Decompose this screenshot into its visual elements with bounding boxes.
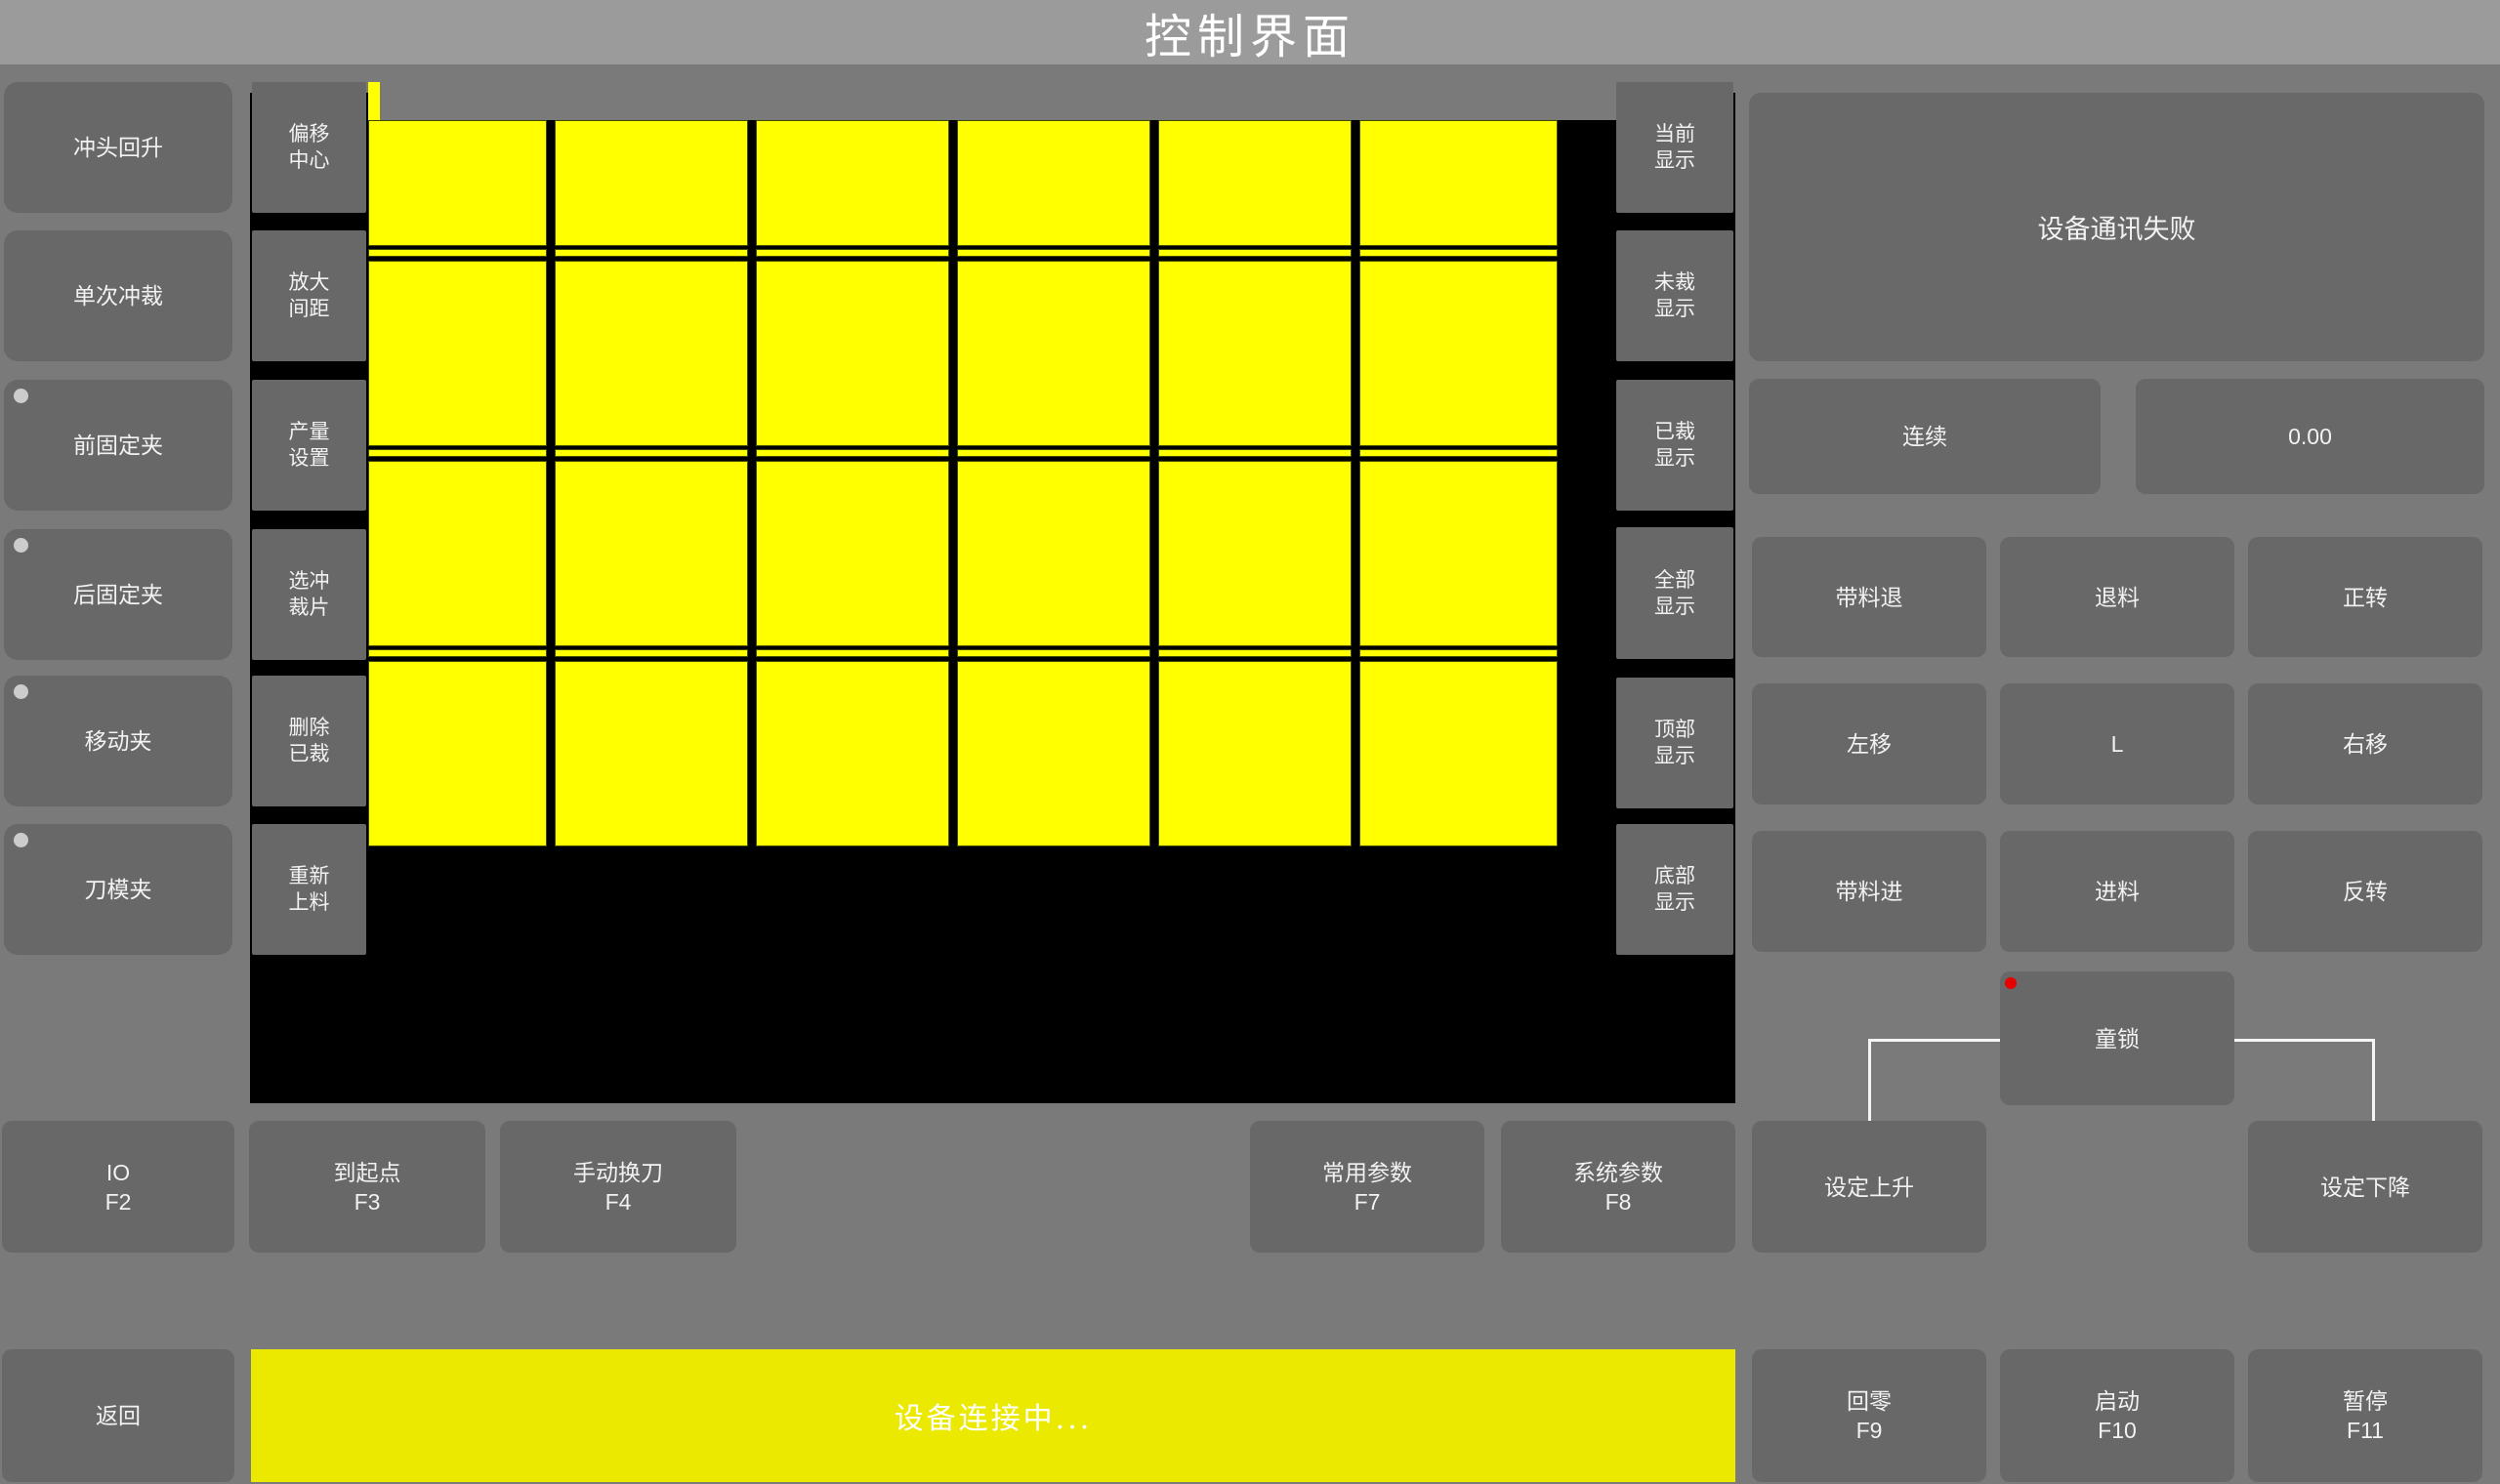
button-offset-center[interactable]: 偏移 中心 — [252, 82, 366, 213]
grid-piece[interactable] — [1158, 661, 1352, 846]
jog-move-left-button[interactable]: 左移 — [1752, 683, 1986, 804]
button-label: 启动 — [2095, 1386, 2140, 1416]
button-label: 重新 上料 — [289, 863, 330, 916]
indicator-dot — [14, 833, 28, 847]
grid-cut-strip — [1359, 449, 1558, 457]
button-label: 到起点 — [334, 1158, 401, 1187]
title-bar: 控制界面 — [0, 0, 2500, 64]
fkey-caption: F4 — [605, 1187, 632, 1216]
button-show-cut[interactable]: 已裁 显示 — [1616, 380, 1733, 511]
value-display-field[interactable]: 0.00 — [2136, 379, 2484, 494]
grid-piece[interactable] — [1359, 661, 1558, 846]
grid-cut-strip — [555, 649, 748, 657]
button-label: 连续 — [1902, 422, 1947, 451]
button-label: L — [2111, 729, 2124, 759]
grid-cut-strip — [1158, 649, 1352, 657]
button-label: 暂停 — [2343, 1386, 2388, 1416]
button-rear-clamp[interactable]: 后固定夹 — [4, 529, 232, 660]
button-label: 选冲 裁片 — [289, 568, 330, 621]
grid-cut-strip — [756, 649, 949, 657]
grid-piece[interactable] — [1158, 461, 1352, 646]
button-show-bottom[interactable]: 底部 显示 — [1616, 824, 1733, 955]
grid-piece[interactable] — [1158, 120, 1352, 246]
grid-piece[interactable] — [756, 120, 949, 246]
canvas-top-margin — [368, 93, 1616, 120]
jog-feed-button[interactable]: 进料 — [2000, 831, 2234, 952]
grid-piece[interactable] — [1359, 461, 1558, 646]
grid-cut-strip — [756, 449, 949, 457]
button-label: 全部 显示 — [1654, 567, 1695, 620]
indicator-dot — [14, 684, 28, 699]
button-label: 未裁 显示 — [1654, 269, 1695, 322]
grid-cut-strip — [368, 649, 547, 657]
button-label: IO — [106, 1158, 130, 1187]
grid-cut-strip — [1359, 649, 1558, 657]
grid-cut-strip — [555, 249, 748, 257]
grid-cut-strip — [957, 649, 1150, 657]
set-rise-button[interactable]: 设定上升 — [1752, 1121, 1986, 1253]
fkey-pause-button[interactable]: 暂停F11 — [2248, 1349, 2482, 1482]
grid-piece[interactable] — [957, 461, 1150, 646]
button-label: 退料 — [2095, 583, 2140, 612]
button-label: 带料进 — [1836, 877, 1903, 906]
grid-edge-tab — [368, 82, 380, 120]
button-label: 手动换刀 — [573, 1158, 663, 1187]
button-label: 正转 — [2343, 583, 2388, 612]
jog-move-right-button[interactable]: 右移 — [2248, 683, 2482, 804]
button-label: 左移 — [1847, 729, 1892, 759]
grid-piece[interactable] — [756, 461, 949, 646]
button-label: 进料 — [2095, 877, 2140, 906]
grid-piece[interactable] — [368, 661, 547, 846]
button-label: 童锁 — [2095, 1024, 2140, 1053]
grid-piece[interactable] — [368, 120, 547, 246]
grid-piece[interactable] — [1158, 261, 1352, 446]
fkey-caption: F3 — [354, 1187, 381, 1216]
button-label: 前固定夹 — [73, 431, 163, 460]
button-label: 放大 间距 — [289, 269, 330, 322]
button-label: 反转 — [2343, 877, 2388, 906]
grid-piece[interactable] — [1359, 261, 1558, 446]
button-show-current[interactable]: 当前 显示 — [1616, 82, 1733, 213]
button-label: 单次冲裁 — [73, 281, 163, 310]
button-label: 删除 已裁 — [289, 715, 330, 767]
button-label: 产量 设置 — [289, 419, 330, 472]
grid-cut-strip — [957, 449, 1150, 457]
value-text: 0.00 — [2288, 422, 2332, 451]
grid-cut-strip — [555, 449, 748, 457]
grid-piece[interactable] — [957, 261, 1150, 446]
fkey-caption: F2 — [105, 1187, 132, 1216]
grid-piece[interactable] — [555, 461, 748, 646]
grid-cut-strip — [756, 249, 949, 257]
button-label: 已裁 显示 — [1654, 419, 1695, 472]
button-punch-rise[interactable]: 冲头回升 — [4, 82, 232, 213]
jog-l-button[interactable]: L — [2000, 683, 2234, 804]
button-delete-cut[interactable]: 删除 已裁 — [252, 676, 366, 806]
grid-cut-strip — [368, 449, 547, 457]
fkey-system-params-button[interactable]: 系统参数F8 — [1501, 1121, 1735, 1253]
grid-cut-strip — [1158, 249, 1352, 257]
button-label: 返回 — [96, 1401, 141, 1430]
jog-unload-button[interactable]: 退料 — [2000, 537, 2234, 657]
button-label: 移动夹 — [85, 726, 152, 756]
control-interface-screen: 控制界面 冲头回升 单次冲裁 前固定夹 后固定夹 移动夹 刀模夹 偏移 中心 放… — [0, 0, 2500, 1484]
button-label: 当前 显示 — [1654, 121, 1695, 174]
button-label: 顶部 显示 — [1654, 717, 1695, 769]
grid-piece[interactable] — [756, 261, 949, 446]
grid-cut-strip — [1359, 249, 1558, 257]
button-show-top[interactable]: 顶部 显示 — [1616, 678, 1733, 808]
button-enlarge-spacing[interactable]: 放大 间距 — [252, 230, 366, 361]
fkey-caption: F11 — [2347, 1416, 2384, 1445]
button-front-clamp[interactable]: 前固定夹 — [4, 380, 232, 511]
jog-forward-rotate-button[interactable]: 正转 — [2248, 537, 2482, 657]
back-button[interactable]: 返回 — [2, 1349, 234, 1482]
button-label: 回零 — [1847, 1386, 1892, 1416]
mode-continuous-button[interactable]: 连续 — [1749, 379, 2101, 494]
page-title: 控制界面 — [0, 0, 2500, 64]
jog-strip-back-button[interactable]: 带料退 — [1752, 537, 1986, 657]
fkey-home-button[interactable]: 回零F9 — [1752, 1349, 1986, 1482]
grid-piece[interactable] — [555, 661, 748, 846]
fkey-caption: F8 — [1605, 1187, 1632, 1216]
grid-piece[interactable] — [368, 461, 547, 646]
connector-line-left-drop — [1868, 1039, 1871, 1123]
jog-reverse-rotate-button[interactable]: 反转 — [2248, 831, 2482, 952]
indicator-dot — [14, 538, 28, 553]
connection-status-text: 设备连接中... — [895, 1394, 1093, 1437]
connection-status-bar: 设备连接中... — [251, 1349, 1735, 1482]
button-label: 设定上升 — [1824, 1173, 1914, 1202]
button-show-uncut[interactable]: 未裁 显示 — [1616, 230, 1733, 361]
fkey-caption: F9 — [1856, 1416, 1883, 1445]
child-lock-button[interactable]: 童锁 — [2000, 971, 2234, 1105]
button-label: 冲头回升 — [73, 133, 163, 162]
button-show-all[interactable]: 全部 显示 — [1616, 527, 1733, 659]
grid-piece[interactable] — [368, 261, 547, 446]
fkey-caption: F7 — [1354, 1187, 1381, 1216]
fkey-to-origin-button[interactable]: 到起点F3 — [249, 1121, 485, 1253]
fkey-common-params-button[interactable]: 常用参数F7 — [1250, 1121, 1484, 1253]
grid-piece[interactable] — [957, 661, 1150, 846]
fkey-manual-tool-change-button[interactable]: 手动换刀F4 — [500, 1121, 736, 1253]
fkey-io-button[interactable]: IOF2 — [2, 1121, 234, 1253]
button-reload-material[interactable]: 重新 上料 — [252, 824, 366, 955]
indicator-dot — [14, 389, 28, 403]
grid-piece[interactable] — [1359, 120, 1558, 246]
button-label: 设定下降 — [2320, 1173, 2410, 1202]
button-output-settings[interactable]: 产量 设置 — [252, 380, 366, 511]
button-label: 带料退 — [1836, 583, 1903, 612]
button-label: 右移 — [2343, 729, 2388, 759]
grid-piece[interactable] — [957, 120, 1150, 246]
fkey-caption: F10 — [2098, 1416, 2137, 1445]
button-label: 底部 显示 — [1654, 863, 1695, 916]
button-label: 刀模夹 — [85, 875, 152, 904]
grid-piece[interactable] — [756, 661, 949, 846]
grid-piece[interactable] — [555, 261, 748, 446]
button-single-punch[interactable]: 单次冲裁 — [4, 230, 232, 361]
button-label: 系统参数 — [1573, 1158, 1663, 1187]
alarm-dot — [2005, 977, 2017, 989]
set-fall-button[interactable]: 设定下降 — [2248, 1121, 2482, 1253]
grid-piece[interactable] — [555, 120, 748, 246]
button-moving-clamp[interactable]: 移动夹 — [4, 676, 232, 806]
device-status-message: 设备通讯失败 — [2038, 208, 2196, 246]
button-die-clamp[interactable]: 刀模夹 — [4, 824, 232, 955]
button-select-piece[interactable]: 选冲 裁片 — [252, 529, 366, 660]
jog-strip-feed-button[interactable]: 带料进 — [1752, 831, 1986, 952]
grid-cut-strip — [957, 249, 1150, 257]
grid-cut-strip — [1158, 449, 1352, 457]
connector-line-right-drop — [2372, 1039, 2375, 1123]
button-label: 偏移 中心 — [289, 121, 330, 174]
fkey-start-button[interactable]: 启动F10 — [2000, 1349, 2234, 1482]
device-status-message-box: 设备通讯失败 — [1749, 93, 2484, 361]
button-label: 后固定夹 — [73, 580, 163, 609]
grid-cut-strip — [368, 249, 547, 257]
button-label: 常用参数 — [1322, 1158, 1412, 1187]
